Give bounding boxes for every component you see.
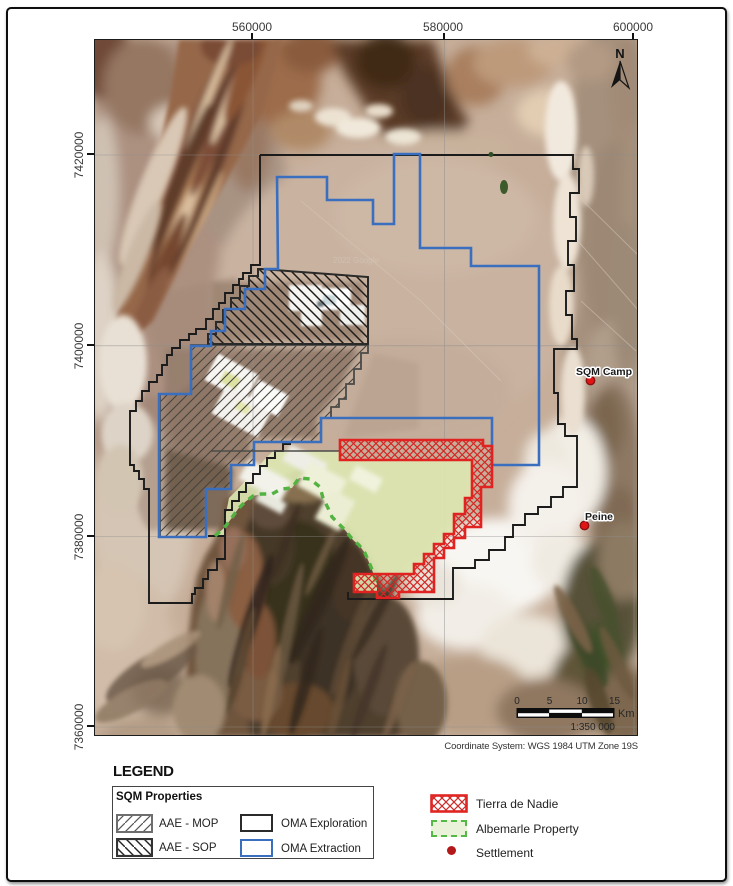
svg-text:10: 10 xyxy=(576,696,588,707)
svg-text:N: N xyxy=(615,46,624,61)
svg-text:Km: Km xyxy=(618,708,635,720)
svg-text:15: 15 xyxy=(609,696,621,707)
svg-text:Peine: Peine xyxy=(585,511,613,523)
svg-text:2022 Google: 2022 Google xyxy=(333,256,379,265)
svg-text:0: 0 xyxy=(514,696,520,707)
svg-text:1:350 000: 1:350 000 xyxy=(571,722,616,733)
svg-text:SQM Camp: SQM Camp xyxy=(576,366,632,378)
svg-text:5: 5 xyxy=(547,696,553,707)
